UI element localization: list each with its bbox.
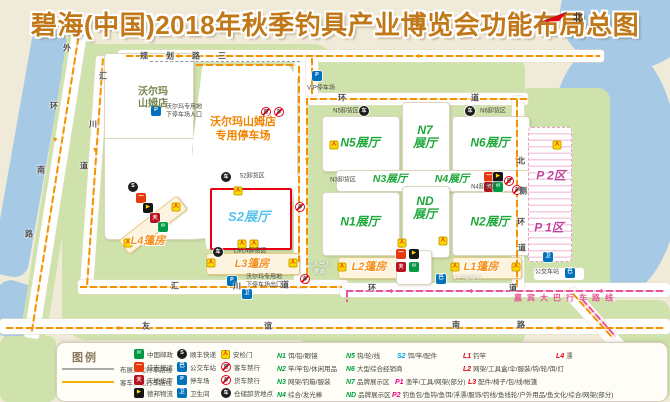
security-gate-icon: 人 xyxy=(234,187,243,196)
legend-hall-code: L2 xyxy=(463,366,471,373)
toilet-icon: 卫 xyxy=(242,289,252,299)
security-gate-icon: 人 xyxy=(238,240,247,249)
legend-facility-卫生间: 卫卫生间 xyxy=(177,388,210,398)
road-char: 道 xyxy=(509,285,517,294)
legend-facility-顺丰快递: S顺丰快递 xyxy=(177,349,216,359)
legend-hall-text: 配件/椅子/包/线/帐篷 xyxy=(478,379,537,386)
security-gate-icon: 人 xyxy=(512,263,521,272)
n3-unloading-label: N3卸货区 xyxy=(330,178,356,185)
legend-facility-label: 安检门 xyxy=(233,349,253,359)
legend-facility-德邦物流: ▶德邦物流 xyxy=(134,388,173,398)
legend-facility-天地华宇: 天天地华宇 xyxy=(134,375,173,385)
route-huichuan-h xyxy=(80,286,342,288)
road-char: 汇 xyxy=(99,73,107,82)
卫生间-icon: 卫 xyxy=(177,388,187,398)
no-bus-icon: 巴 xyxy=(504,176,514,186)
vip-parking-label: VIP停车场 xyxy=(307,86,335,93)
security-gate-icon: 人 xyxy=(451,263,460,272)
toilet-icon: 卫 xyxy=(543,252,553,262)
green-band-west xyxy=(86,296,338,320)
security-gate-icon: 人 xyxy=(553,141,562,150)
unloading-truck-icon: 车 xyxy=(221,172,231,182)
vip-bus-route-label: 嘉宾大巴行车路线 xyxy=(514,295,618,304)
legend-facility-label: 客车禁行 xyxy=(234,362,260,372)
road-char: 川 xyxy=(89,121,97,130)
legend-hall-S2: S2饵/竿/配件 xyxy=(397,350,437,360)
n5-unloading-label: N5卸货区 xyxy=(333,109,359,116)
legend-facility-停车场: P停车场 xyxy=(177,375,210,385)
route-arrow-icon: ► xyxy=(416,52,424,60)
legend-hall-L4: L4漂 xyxy=(556,350,573,360)
legend-facility-label: 顺丰快递 xyxy=(190,349,216,359)
legend-hall-text: 钓竿 xyxy=(473,353,486,360)
佳吉快运-icon: 一 xyxy=(134,362,144,372)
legend-hall-P1: P1渔竿/工具/网架(部分) xyxy=(395,376,466,386)
tdhy-icon: 天 xyxy=(396,262,406,272)
walmart-parking-label: 沃尔玛山姆店 xyxy=(210,116,276,128)
walmart-garage-exit-label: 沃尔玛专用地 xyxy=(246,275,282,282)
legend-facility-中国邮政: ✉中国邮政 xyxy=(134,349,173,359)
客车禁行-icon: 巴 xyxy=(221,362,231,372)
route-arrow-icon: ► xyxy=(116,324,124,332)
legend-hall-code: N7 xyxy=(346,379,355,386)
legend-facility-安检门: 人安检门 xyxy=(221,349,253,359)
legend-hall-P2: P2钓鱼包/鱼钩/鱼饵/浮漂/服饰/钓线/鱼线轮/户外用品/鱼文化/综合/网架(… xyxy=(392,389,613,399)
expo-map: S一▶天✉一▶天✉一▶天✉人人人人人人人人人人人人人人车车车车巴车车巴车车PPP… xyxy=(0,0,670,402)
route-park-east xyxy=(298,66,300,262)
legend-hall-N3: N3网架/钓箱/服装 xyxy=(277,376,331,386)
安检门-icon: 人 xyxy=(221,350,230,359)
sf-express-icon: S xyxy=(128,182,138,192)
legend-hall-code: N1 xyxy=(277,353,286,360)
walmart-garage-entrance-label: 沃尔玛专用地 xyxy=(166,105,202,112)
legend-hall-L3: L3配件/椅子/包/线/帐篷 xyxy=(468,376,537,386)
road-char: 环 xyxy=(50,103,58,112)
legend-facility-label: 佳吉快运 xyxy=(147,362,173,372)
legend-hall-text: 品牌展示区 xyxy=(358,392,391,399)
legend-hall-L2: L2网架/工具盒/伞/服装/钩/轮/饵/灯 xyxy=(463,363,564,373)
bus-stop-icon: 巴 xyxy=(436,274,446,284)
legend-hall-text: 综合/发光棒 xyxy=(288,392,322,399)
route-halls-west xyxy=(306,98,308,284)
security-gate-icon: 人 xyxy=(207,259,216,268)
road-char: 环 xyxy=(338,95,346,104)
legend-facility-label: 天地华宇 xyxy=(147,375,173,385)
road-char: 道 xyxy=(471,95,479,104)
legend-facility-label: 中国邮政 xyxy=(147,349,173,359)
legend-facility-label: 德邦物流 xyxy=(147,388,173,398)
legend-hall-N6: N6大型综合经销商 xyxy=(346,363,402,373)
road-char: 规 xyxy=(140,53,148,62)
legend-hall-code: N3 xyxy=(277,379,286,386)
road-char: 环 xyxy=(368,285,376,294)
road-char: 汇 xyxy=(171,283,179,292)
security-gate-icon: 人 xyxy=(172,203,181,212)
deppon-icon: ▶ xyxy=(143,203,153,213)
road-char: 路 xyxy=(25,231,33,240)
coach-stop-label: 大巴停靠点 xyxy=(452,277,482,284)
worker-passage-label: 工人出入 xyxy=(307,263,331,270)
hall-nd-label: ND 展厅 xyxy=(413,195,437,221)
unloading-truck-icon: 车 xyxy=(465,106,475,116)
货车禁行-icon: 车 xyxy=(221,375,231,385)
route-arrow-icon: ► xyxy=(176,52,184,60)
road-char: 路 xyxy=(192,53,200,62)
walmart-garage-exit-label: 下停车场出口 xyxy=(246,283,282,290)
legend-facility-label: 货车禁行 xyxy=(234,375,260,385)
hall-n4-label: N4展厅 xyxy=(435,174,469,186)
legend-route-line-yellow xyxy=(62,381,114,383)
legend-hall-N2: N2竿/竿包/休闲用品 xyxy=(277,363,337,373)
road-char: 道 xyxy=(518,245,526,254)
tent-l4-label: L4篷房 xyxy=(131,235,166,247)
legend-hall-text: 漂 xyxy=(566,353,573,360)
legend-hall-code: P1 xyxy=(395,379,404,386)
security-gate-icon: 人 xyxy=(250,240,259,249)
north-label: 北 xyxy=(573,9,583,24)
bus-station-icon: 巴 xyxy=(565,268,575,278)
bus-station-label: 公交车站 xyxy=(535,270,559,277)
parking-icon: P xyxy=(312,71,322,81)
legend-hall-code: N2 xyxy=(277,366,286,373)
route-arrow-icon: ► xyxy=(556,324,564,332)
legend-hall-code: L4 xyxy=(556,353,564,360)
hall-n1-label: N1展厅 xyxy=(340,215,379,228)
walmart-parking-label: 专用停车场 xyxy=(216,130,271,142)
legend-hall-code: N6 xyxy=(346,366,355,373)
hall-s2-label: S2展厅 xyxy=(228,210,270,224)
vip-route-arrow-icon: ◄ xyxy=(386,287,394,295)
parking-p1-label: P 1区 xyxy=(534,221,564,234)
security-gate-icon: 人 xyxy=(330,141,339,150)
route-youyi xyxy=(6,327,664,329)
china-post-icon: ✉ xyxy=(409,262,419,272)
compass: 北 xyxy=(540,9,583,24)
route-vip-bus-hook xyxy=(346,290,348,302)
德邦物流-icon: ▶ xyxy=(134,388,144,398)
l3l4-unloading-label: L3/L4卸货区 xyxy=(233,249,266,256)
security-gate-icon: 人 xyxy=(439,237,448,246)
tent-l2-label: L2篷房 xyxy=(352,261,387,273)
legend-hall-text: 饵/竿/配件 xyxy=(408,353,438,360)
road-char: 道 xyxy=(281,282,289,291)
legend-hall-L1: L1钓竿 xyxy=(463,350,486,360)
legend-hall-text: 竿/竿包/休闲用品 xyxy=(288,366,337,373)
security-gate-icon: 人 xyxy=(338,263,347,272)
legend-title: 图例 xyxy=(72,349,98,365)
legend-hall-code: L1 xyxy=(463,353,471,360)
legend-hall-N7: N7品牌展示区 xyxy=(346,376,389,386)
legend-hall-N5: N5钩/轮/线 xyxy=(346,350,380,360)
legend-facility-佳吉快运: 一佳吉快运 xyxy=(134,362,173,372)
deppon-icon: ▶ xyxy=(493,172,503,182)
legend-hall-code: N4 xyxy=(277,392,286,399)
hall-n7-label: N7 展厅 xyxy=(413,124,437,150)
n6-unloading-label: N6卸货区 xyxy=(480,109,506,116)
legend-facility-label: 公交车站 xyxy=(190,362,216,372)
中国邮政-icon: ✉ xyxy=(134,349,144,359)
tent-l3-label: L3篷房 xyxy=(235,258,270,270)
green-band-east xyxy=(346,302,664,320)
unloading-truck-icon: 车 xyxy=(213,247,223,257)
walmart-store-label: 沃尔玛 xyxy=(138,87,168,98)
legend-hall-code: P2 xyxy=(392,392,401,399)
hall-n6-label: N6展厅 xyxy=(470,136,509,149)
north-arrow-icon xyxy=(540,10,570,24)
road-char: 南 xyxy=(37,167,45,176)
hall-n3-label: N3展厅 xyxy=(373,174,407,186)
顺丰快递-icon: S xyxy=(177,349,187,359)
route-arrow-icon: ► xyxy=(91,146,100,155)
no-truck-icon: 车 xyxy=(295,202,305,212)
legend-hall-ND: ND品牌展示区 xyxy=(346,389,391,399)
仓储卸货地点-icon: 车 xyxy=(221,388,231,398)
legend-hall-text: 网架/钓箱/服装 xyxy=(288,379,331,386)
no-truck-icon: 车 xyxy=(300,274,310,284)
legend-facility-客车禁行: 巴客车禁行 xyxy=(221,362,260,372)
legend-hall-text: 钩/轮/线 xyxy=(357,353,380,360)
legend-hall-code: N5 xyxy=(346,353,355,360)
n4-unloading-label: N4卸货区 xyxy=(471,185,497,192)
route-arrow-icon: ► xyxy=(303,156,311,164)
green-southwest xyxy=(0,336,56,402)
legend-facility-仓储卸货地点: 车仓储卸货地点 xyxy=(221,388,273,398)
legend-hall-text: 网架/工具盒/伞/服装/钩/轮/饵/灯 xyxy=(473,366,564,373)
route-arrow-icon: ► xyxy=(346,324,354,332)
legend-route-line-gray xyxy=(62,368,114,370)
legend-hall-N1: N1饵/铅/眼镜 xyxy=(277,350,318,360)
legend-hall-text: 钓鱼包/鱼钩/鱼饵/浮漂/服饰/钓线/鱼线轮/户外用品/鱼文化/综合/网架(部分… xyxy=(403,392,614,399)
worker-passage-label: 通道 xyxy=(313,270,325,277)
hall-n2-label: N2展厅 xyxy=(470,215,509,228)
legend-hall-text: 渔竿/工具/网架(部分) xyxy=(406,379,466,386)
road-char: 道 xyxy=(80,163,88,172)
walmart-garage-entrance-label: 下停车场入口 xyxy=(166,113,202,120)
route-park-north xyxy=(196,64,296,66)
legend-facility-货车禁行: 车货车禁行 xyxy=(221,375,260,385)
road-char: 三 xyxy=(218,53,226,62)
legend-facility-label: 仓储卸货地点 xyxy=(234,388,273,398)
legend-hall-code: ND xyxy=(346,392,356,399)
legend-hall-code: L3 xyxy=(468,379,476,386)
deppon-icon: ▶ xyxy=(409,249,419,259)
legend-hall-text: 品牌展示区 xyxy=(357,379,390,386)
legend-facility-label: 停车场 xyxy=(190,375,210,385)
road-char: 友 xyxy=(142,323,150,332)
jiaji-icon: 一 xyxy=(396,249,406,259)
china-post-icon: ✉ xyxy=(158,222,168,232)
legend-facility-公交车站: 巴公交车站 xyxy=(177,362,216,372)
road-char: 路 xyxy=(517,322,525,331)
road-char: 北 xyxy=(517,158,525,167)
legend-hall-N4: N4综合/发光棒 xyxy=(277,389,322,399)
walmart-store-label: 山姆店 xyxy=(138,99,168,110)
hall-n5-label: N5展厅 xyxy=(340,136,379,149)
tent-l1-label: L1篷房 xyxy=(464,261,499,273)
road-char: 外 xyxy=(63,45,71,54)
legend-hall-text: 大型综合经销商 xyxy=(357,366,403,373)
road-char: 划 xyxy=(166,53,174,62)
jiaji-icon: 一 xyxy=(136,193,146,203)
security-gate-icon: 人 xyxy=(289,259,298,268)
天地华宇-icon: 天 xyxy=(134,375,144,385)
road-char: 环 xyxy=(517,219,525,228)
公交车站-icon: 巴 xyxy=(177,362,187,372)
road-char: 谊 xyxy=(264,323,272,332)
legend-hall-text: 饵/铅/眼镜 xyxy=(288,353,318,360)
route-arrow-icon: ► xyxy=(50,135,59,144)
vip-route-arrow-icon: ◄ xyxy=(466,287,474,295)
parking-area-p xyxy=(528,127,572,262)
security-gate-icon: 人 xyxy=(398,239,407,248)
road-char: 南 xyxy=(452,322,460,331)
unloading-truck-icon: 车 xyxy=(359,106,369,116)
legend-hall-code: S2 xyxy=(397,353,406,360)
road-char: 川 xyxy=(233,283,241,292)
parking-p2-label: P 2区 xyxy=(536,169,566,182)
停车场-icon: P xyxy=(177,375,187,385)
legend-facility-label: 卫生间 xyxy=(190,388,210,398)
road-char: 侧 xyxy=(519,188,527,197)
s2-unloading-label: S2卸货区 xyxy=(239,174,264,181)
